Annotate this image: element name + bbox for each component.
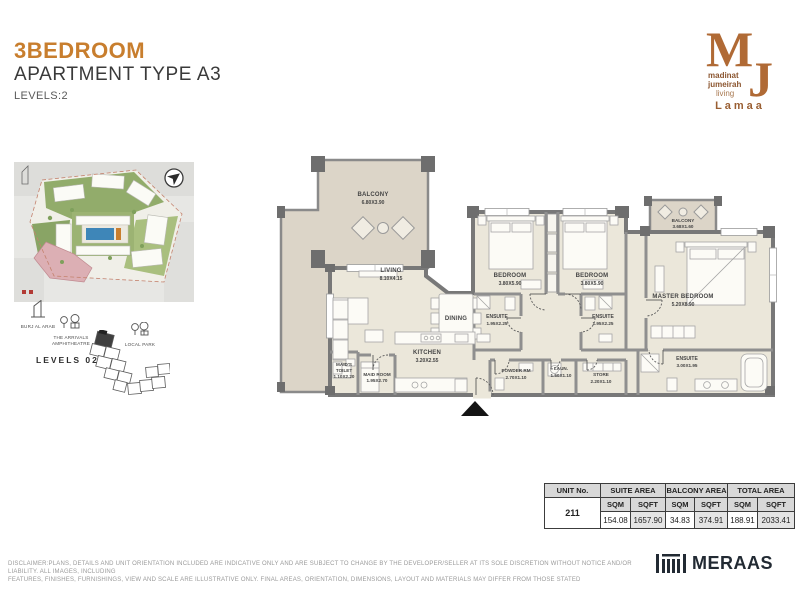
apartment-type: APARTMENT TYPE A3 [14,64,221,86]
col-balcony-area: BALCONY AREA [666,484,728,498]
room-kitchen: KITCHEN [413,350,441,356]
balcony-sqft-header: SQFT [695,498,728,512]
page-title: 3BEDROOM [14,38,145,64]
suite-sqm-header: SQM [601,498,631,512]
room-store-dims: 2.20X1.10 [591,379,612,384]
room-master: MASTER BEDROOM [652,294,713,300]
logo-word-madinat: madinat [708,71,739,80]
entrance-marker [461,401,489,416]
suite-sqft-header: SQFT [631,498,666,512]
room-maids-toilet-2: TOILET [336,368,352,373]
total-sqft-header: SQFT [758,498,795,512]
mj-logo: M J madinat jumeirah living [686,14,790,114]
total-sqft-value: 2033.41 [758,512,795,529]
room-master-ensuite: ENSUITE [676,356,698,362]
room-master-ensuite-dims: 3.00X1.95 [677,363,698,368]
burj-al-arab-icon [30,300,46,318]
balcony-sqft-value: 374.91 [695,512,728,529]
room-maid-room: MAID ROOM [363,372,390,377]
room-powder: POWDER RM [501,368,530,373]
room-powder-dims: 2.70X1.10 [506,375,527,380]
room-ensuite2: ENSUITE [592,314,614,320]
balcony-sqm-value: 34.83 [666,512,695,529]
room-balcony-main: BALCONY [357,192,388,198]
floor-plan: BALCONY 6.80X3.90 LIVING 8.10X4.15 DININ… [263,148,798,478]
room-maids-toilet-dims: 1.10X2.20 [334,374,355,379]
room-laundry: LAUN. [554,366,568,371]
room-master-dims: 5.20X8.90 [672,302,695,308]
levels-label: LEVELS:2 [14,90,68,102]
room-balcony2: BALCONY [672,218,695,223]
col-total-area: TOTAL AREA [728,484,795,498]
room-dining: DINING [445,316,467,322]
room-laundry-dims: 1.50X1.10 [551,373,572,378]
disclaimer-line-1: DISCLAIMER:PLANS, DETAILS AND UNIT ORIEN… [8,560,658,576]
room-living-dims: 8.10X4.15 [380,276,403,282]
col-unit-no: UNIT No. [545,484,601,498]
room-store: STORE [593,372,609,377]
balcony-sqm-header: SQM [666,498,695,512]
room-maid-room-dims: 1.95X2.70 [367,378,388,383]
developer-name: MERAAS [692,553,773,574]
disclaimer: DISCLAIMER:PLANS, DETAILS AND UNIT ORIEN… [8,560,658,584]
meraas-icon [656,552,686,574]
suite-sqft-value: 1657.90 [631,512,666,529]
room-bedroom2-dims: 3.80X5.90 [581,281,604,287]
meraas-logo: MERAAS [656,552,773,574]
room-balcony-main-dims: 6.80X3.90 [362,200,385,206]
room-balcony2-dims: 3.68X1.60 [673,224,694,229]
building-key-plan [84,330,170,398]
room-ensuite1-dims: 1.95X2.25 [487,321,508,326]
room-maids-toilet-1: MAID'S [336,362,352,367]
pool [86,228,114,240]
north-arrow-icon [165,169,183,187]
disclaimer-line-2: FEATURES, FINISHES, FURNISHINGS, VIEW AN… [8,576,658,584]
amphitheatre-icon [58,314,84,329]
unit-number: 211 [545,498,601,529]
logo-letter-j: J [748,51,773,107]
logo-word-living: living [716,89,734,98]
community-name: Lamaa [700,100,780,112]
logo-letter-m: M [706,21,753,77]
mj-logo-art: M J madinat jumeirah living [686,14,790,114]
room-ensuite1: ENSUITE [486,314,508,320]
room-ensuite2-dims: 1.95X2.25 [593,321,614,326]
site-map [14,162,194,302]
total-sqm-header: SQM [728,498,758,512]
suite-sqm-value: 154.08 [601,512,631,529]
area-table: UNIT No. SUITE AREA BALCONY AREA TOTAL A… [544,483,795,529]
room-bedroom2: BEDROOM [576,273,609,279]
logo-word-jumeirah: jumeirah [707,80,741,89]
room-bedroom1: BEDROOM [494,273,527,279]
room-bedroom1-dims: 3.80X5.90 [499,281,522,287]
floorplan-sheet: 3BEDROOM APARTMENT TYPE A3 LEVELS:2 M J … [0,0,800,603]
col-suite-area: SUITE AREA [601,484,666,498]
total-sqm-value: 188.91 [728,512,758,529]
room-kitchen-dims: 3.20X2.55 [416,358,439,364]
room-living: LIVING [380,268,401,274]
